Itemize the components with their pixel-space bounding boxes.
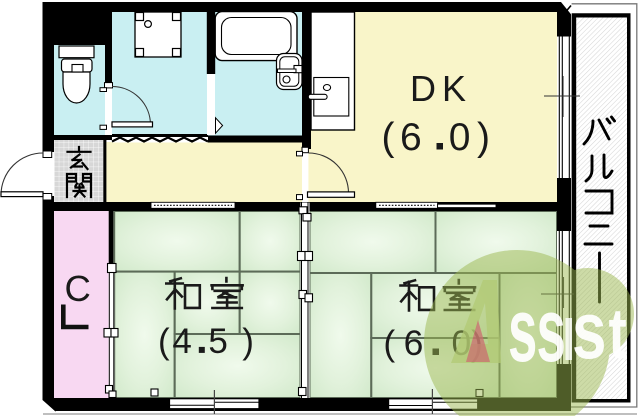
svg-text:C: C <box>65 268 91 309</box>
svg-text:ss: ss <box>508 279 566 380</box>
svg-text:DK: DK <box>410 68 472 109</box>
svg-text:st: st <box>572 286 627 376</box>
